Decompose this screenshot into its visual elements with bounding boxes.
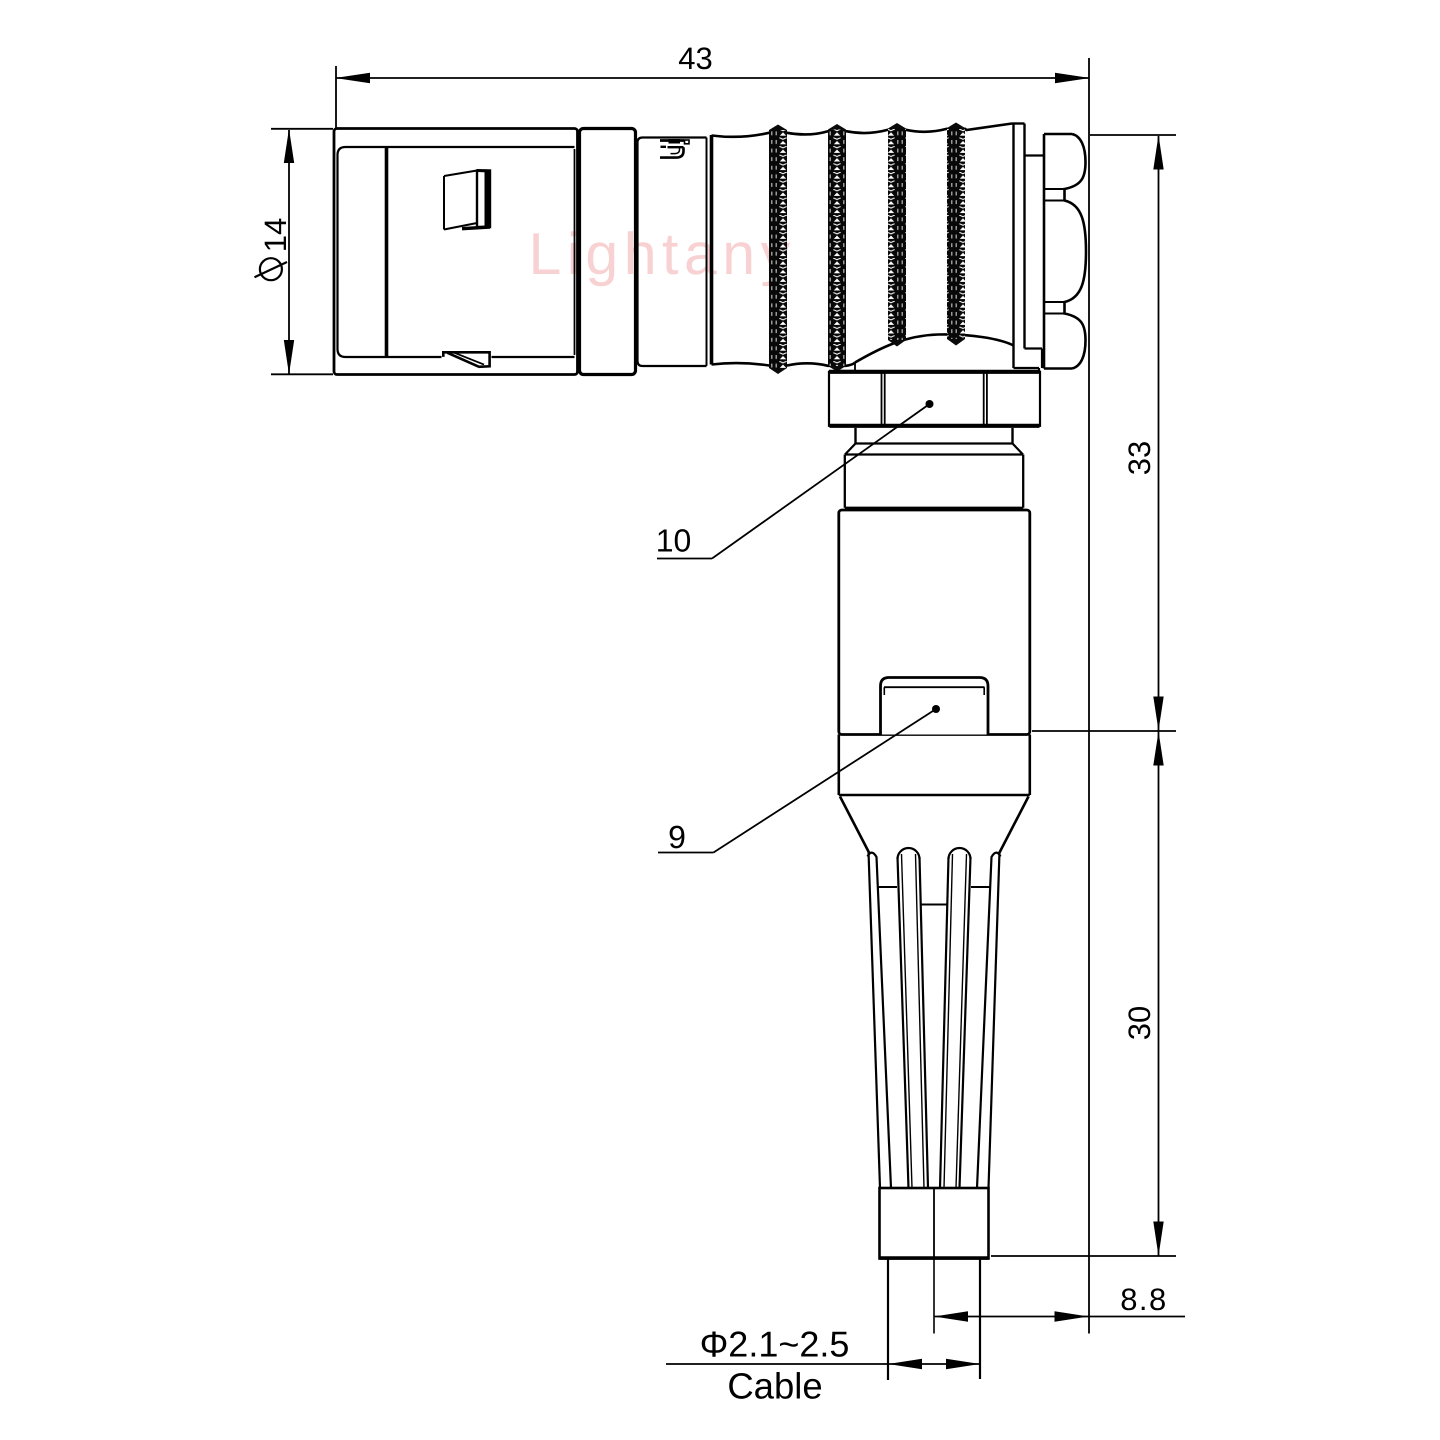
svg-text:33: 33 bbox=[1122, 441, 1157, 475]
svg-text:Lightany: Lightany bbox=[529, 221, 796, 287]
svg-text:30: 30 bbox=[1122, 1006, 1157, 1040]
svg-text:9: 9 bbox=[668, 819, 686, 855]
svg-text:43: 43 bbox=[678, 41, 712, 76]
svg-text:Cable: Cable bbox=[727, 1366, 822, 1407]
svg-text:8.8: 8.8 bbox=[1120, 1282, 1168, 1317]
svg-text:14: 14 bbox=[258, 218, 293, 252]
svg-text:10: 10 bbox=[656, 523, 692, 559]
svg-text:Φ2.1~2.5: Φ2.1~2.5 bbox=[700, 1324, 850, 1365]
